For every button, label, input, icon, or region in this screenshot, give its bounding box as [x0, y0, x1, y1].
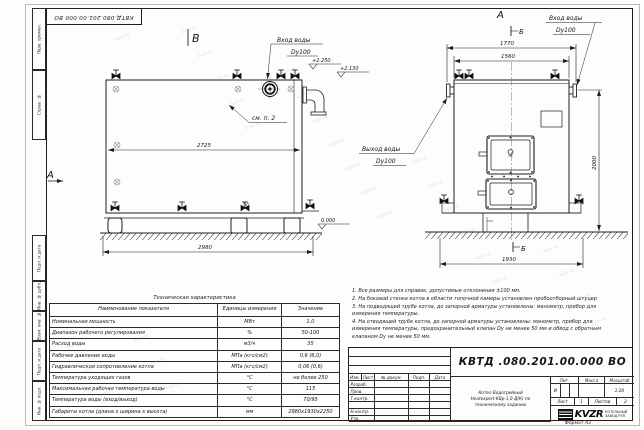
dim-2725: 2725	[197, 143, 211, 149]
spec-name: Максимальная рабочая температура воды	[50, 384, 218, 395]
inlet-dn: Dy100	[291, 49, 311, 56]
spec-value: 2980х1930х2250	[281, 406, 339, 417]
table-row: Расход водым3/ч35	[50, 339, 340, 350]
tb-col-podp: Подп.	[409, 374, 430, 381]
elev-0000: 0.000	[321, 218, 335, 224]
section-marker-b-top: Б	[511, 26, 524, 36]
spec-name: Расход воды	[50, 339, 218, 350]
view-b-label: В	[192, 32, 200, 45]
inlet-label: Вход воды	[549, 15, 583, 22]
view-marker-a-left: А	[46, 170, 63, 181]
tb-row-razrab: Разраб.	[349, 381, 375, 388]
spec-unit: °С	[218, 384, 282, 395]
elevation-marks: +2.250 +2.130 0.000	[309, 58, 369, 229]
tb-sheets-label: Листов	[589, 398, 617, 406]
dim-side-inner: 2725	[108, 143, 300, 150]
tb-scale-label: Масштаб	[605, 377, 634, 384]
inlet-label: Вход воды	[277, 37, 311, 44]
view-marker-a-top: А	[496, 10, 504, 21]
company-subtitle: КОТЕЛЬНЫЙ ЗАВОД РЭП	[605, 410, 627, 418]
outlet-dn: Dy100	[376, 158, 396, 165]
title-block: Изм. Лист № докум. Подп. Дата Разраб. Пр…	[348, 347, 633, 421]
drawing-sheet: Перв. примен. Справ. № Подп. и дата Инв.…	[0, 0, 644, 430]
table-row: Рабочее давление водыМПа (кгс/см2)0,6 (6…	[50, 350, 340, 361]
note-1: 1. Все размеры для справок, допустимые о…	[352, 288, 604, 295]
spec-unit: МПа (кгс/см2)	[218, 350, 282, 361]
spec-name: Температура уходящих газов	[50, 372, 218, 383]
tb-row-utv: Утв.	[349, 416, 375, 423]
tb-scale-value: 1:20	[605, 384, 634, 398]
spec-table-title: Техническая характеристика	[49, 295, 340, 301]
callout-inlet-front: Вход воды Dy100	[546, 15, 602, 85]
table-row: Диапазон рабочего регулирования%50-100	[50, 328, 340, 339]
notes-block: 1. Все размеры для справок, допустимые о…	[352, 288, 604, 342]
tb-sheets-value: 2	[617, 398, 634, 406]
door-bolts	[487, 180, 535, 209]
table-row: Температура уходящих газов°Сне более 250	[50, 372, 340, 383]
spec-name: Номинальная мощность	[50, 317, 218, 328]
spec-value: не более 250	[281, 372, 339, 383]
outlet-elbow	[303, 87, 326, 115]
spec-unit: МВт	[218, 317, 282, 328]
spec-unit: °С	[218, 395, 282, 406]
company-logo-text: KVZR	[575, 409, 603, 420]
dim-1930: 1930	[502, 257, 516, 263]
spec-name: Диапазон рабочего регулирования	[50, 328, 218, 339]
section-b-top-label: Б	[519, 28, 524, 36]
table-row: Номинальная мощностьМВт1,0	[50, 317, 340, 328]
spec-value: 35	[281, 339, 339, 350]
ground-line-side	[100, 233, 322, 240]
view-marker-b: В	[188, 29, 200, 46]
elev-2250: +2.250	[312, 58, 331, 64]
lower-door	[478, 179, 536, 209]
tb-row-tkontr: Т.контр.	[349, 395, 375, 402]
table-row: Габариты котла (длина х ширина х высота)…	[50, 406, 340, 417]
elev-2130: +2.130	[340, 66, 359, 72]
spec-value: 70/95	[281, 395, 339, 406]
spec-col-unit: Единицы измерения	[218, 304, 282, 317]
right-inlet-flange	[569, 84, 577, 97]
spec-value: 115	[281, 384, 339, 395]
note-2: 2. На боковой стенке котла в области топ…	[352, 296, 604, 303]
table-row: Гидравлическое сопротивление котлаМПа (к…	[50, 361, 340, 372]
spec-unit: мм	[218, 406, 282, 417]
door-bolts	[488, 137, 533, 174]
view-a-top-label: А	[496, 10, 504, 21]
section-b-bottom-label: Б	[521, 245, 526, 253]
dim-front-base: 1930	[440, 238, 583, 268]
tb-row-prov: Пров.	[349, 388, 375, 395]
note-4: 4. На отводящей трубе котла, до запорной…	[352, 319, 604, 340]
tb-col-data: Дата	[430, 374, 451, 381]
spec-unit: МПа (кгс/см2)	[218, 361, 282, 372]
see-note-label: см. п. 2	[252, 115, 275, 122]
company-line2: ЗАВОД РЭП	[605, 414, 627, 418]
callout-outlet-front: Выход воды Dy100	[359, 98, 447, 166]
ground-line-front	[425, 232, 628, 239]
spec-col-value: Значение	[281, 304, 339, 317]
callout-see-note-2: см. п. 2	[229, 105, 287, 123]
side-view	[104, 80, 326, 233]
section-marker-b-bottom: Б	[513, 242, 526, 253]
kvzr-logo-icon	[558, 409, 573, 420]
dim-1770: 1770	[500, 41, 514, 47]
spec-value: 0,06 (0,6)	[281, 361, 339, 372]
spec-name: Температура воды (вход/выход)	[50, 395, 218, 406]
spec-value: 50-100	[281, 328, 339, 339]
tb-lit-value: И	[551, 384, 561, 398]
format-note: Формат А3	[528, 421, 628, 426]
upper-door	[479, 136, 534, 174]
dim-1560: 1560	[501, 54, 515, 60]
product-name: Котел Водогрейный Heatexpert-КВр-1,0-Д(К…	[451, 377, 551, 422]
spec-name: Габариты котла (длина х ширина х высота)	[50, 406, 218, 417]
dim-front-height: 2000	[578, 90, 602, 231]
spec-table-block: Техническая характеристика Наименование …	[49, 295, 340, 418]
tb-mass-label: Масса	[579, 377, 605, 384]
tb-lit-label: Лит.	[551, 377, 579, 384]
spec-unit: °С	[218, 372, 282, 383]
company-block: KVZR КОТЕЛЬНЫЙ ЗАВОД РЭП	[551, 406, 634, 422]
dim-2000: 2000	[592, 156, 598, 170]
note-3: 3. На подводящей трубе котла, до запорно…	[352, 304, 604, 318]
front-view	[442, 62, 581, 242]
dim-2980: 2980	[198, 245, 212, 251]
tb-sheet-label: Лист	[551, 398, 575, 406]
table-row: Максимальная рабочая температура воды°С1…	[50, 384, 340, 395]
tb-col-izm: Изм.	[349, 374, 362, 381]
tb-sheet-value: 1	[575, 398, 589, 406]
spec-table: Наименование показателя Единицы измерени…	[49, 303, 340, 418]
doc-number: КВТД .080.201.00.000 ВО	[459, 356, 626, 368]
spec-unit: %	[218, 328, 282, 339]
side-view-valve-icons	[111, 70, 314, 211]
tb-col-dokum: № докум.	[375, 374, 409, 381]
spec-value: 0,6 (6,0)	[281, 350, 339, 361]
spec-name: Гидравлическое сопротивление котла	[50, 361, 218, 372]
left-outlet-flange	[447, 84, 455, 97]
inlet-nozzle-circle	[258, 77, 282, 101]
spec-unit: м3/ч	[218, 339, 282, 350]
view-a-label: А	[46, 170, 54, 181]
outlet-label: Выход воды	[362, 146, 400, 153]
spec-name: Рабочее давление воды	[50, 350, 218, 361]
spec-value: 1,0	[281, 317, 339, 328]
inlet-dn: Dy100	[556, 27, 576, 34]
tb-col-list: Лист	[362, 374, 375, 381]
spec-header-row: Наименование показателя Единицы измерени…	[50, 304, 340, 317]
spec-col-name: Наименование показателя	[50, 304, 218, 317]
product-name-line3: техническому заданию	[475, 402, 527, 408]
table-row: Температура воды (вход/выход)°С70/95	[50, 395, 340, 406]
bolt-row-between-doors	[491, 176, 531, 178]
